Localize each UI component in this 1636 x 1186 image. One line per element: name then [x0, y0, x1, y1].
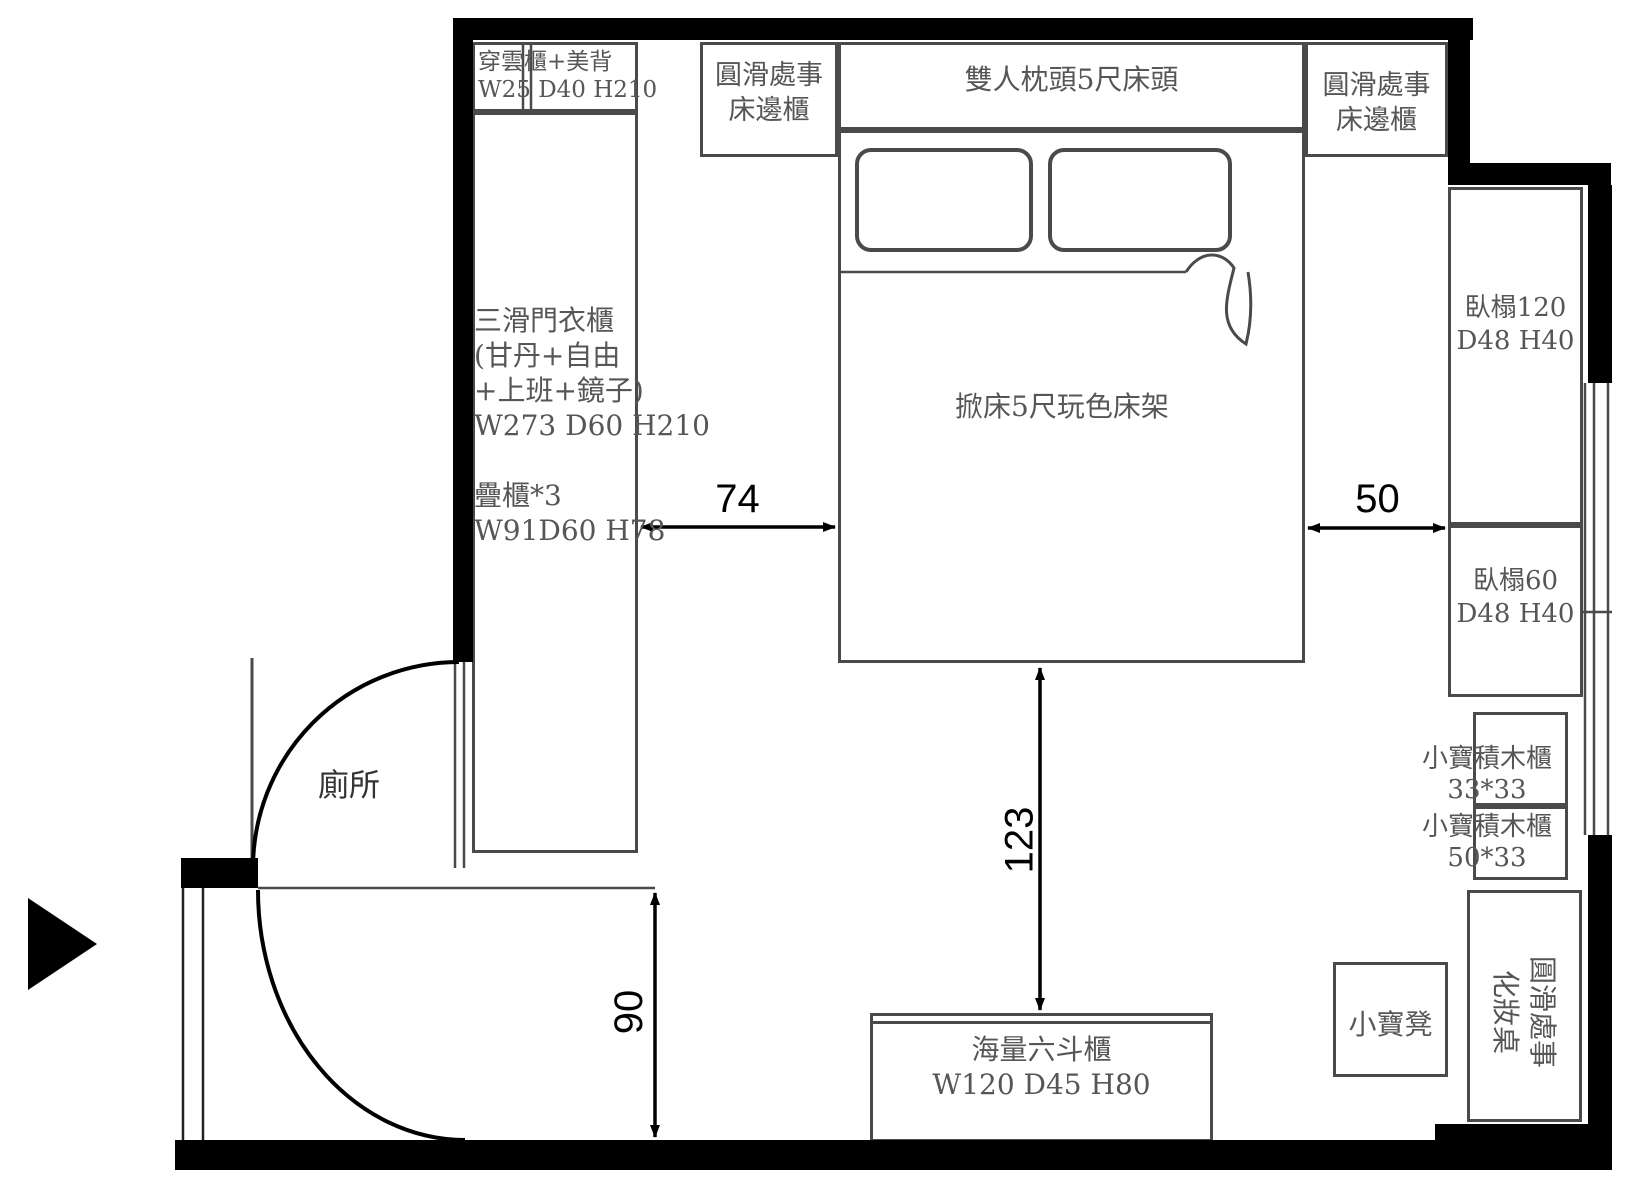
- vanity-label: 圓滑處事 化妝桌: [1487, 937, 1561, 1087]
- entry-door-arc: [258, 890, 465, 1140]
- blocks-cabinet-33-label: 小寶積木櫃 33*33: [1392, 744, 1582, 806]
- wall-step-horizontal: [1448, 163, 1611, 185]
- wall-top: [453, 18, 1473, 40]
- wall-right-lower: [1588, 835, 1612, 1145]
- headboard-label: 雙人枕頭5尺床頭: [838, 58, 1305, 98]
- dim-90: 90: [607, 972, 657, 1052]
- pillow-left: [855, 148, 1033, 252]
- toilet-door-leaf: [455, 662, 464, 868]
- daybed-120-label: 臥榻120 D48 H40: [1448, 292, 1583, 358]
- bedside-right-label: 圓滑處事 床邊櫃: [1305, 68, 1448, 138]
- top-cabinet-label: 穿雲櫃+美背 W25 D40 H210: [478, 48, 636, 104]
- floor-plan: 穿雲櫃+美背 W25 D40 H210 圓滑處事 床邊櫃 雙人枕頭5尺床頭 圓滑…: [0, 0, 1636, 1186]
- bedside-left-label: 圓滑處事 床邊櫃: [700, 58, 838, 128]
- daybed-60-label: 臥榻60 D48 H40: [1448, 565, 1583, 631]
- dresser-label: 海量六斗櫃 W120 D45 H80: [870, 1032, 1213, 1102]
- wardrobe-label: 三滑門衣櫃 (甘丹+自由 +上班+鏡子) W273 D60 H210 疊櫃*3 …: [474, 303, 649, 548]
- entry-door-leaf: [183, 888, 203, 1140]
- dim-50: 50: [1340, 477, 1415, 522]
- blocks-cabinet-50-label: 小寶積木櫃 50*33: [1392, 812, 1582, 874]
- wall-bottom: [175, 1140, 1612, 1170]
- dim-123: 123: [998, 798, 1048, 883]
- dresser-top-edge: [873, 1021, 1210, 1024]
- dim-74: 74: [700, 477, 775, 522]
- window-lines: [1583, 383, 1612, 835]
- pillow-right: [1048, 148, 1232, 252]
- bed-label: 掀床5尺玩色床架: [955, 385, 1169, 425]
- stool-label: 小寶凳: [1333, 1003, 1448, 1043]
- wall-right-upper: [1588, 185, 1612, 383]
- wall-entry-block: [181, 858, 258, 888]
- toilet-label: 廁所: [318, 760, 380, 805]
- wall-left-upper: [453, 18, 473, 662]
- entry-direction-marker: [28, 898, 97, 990]
